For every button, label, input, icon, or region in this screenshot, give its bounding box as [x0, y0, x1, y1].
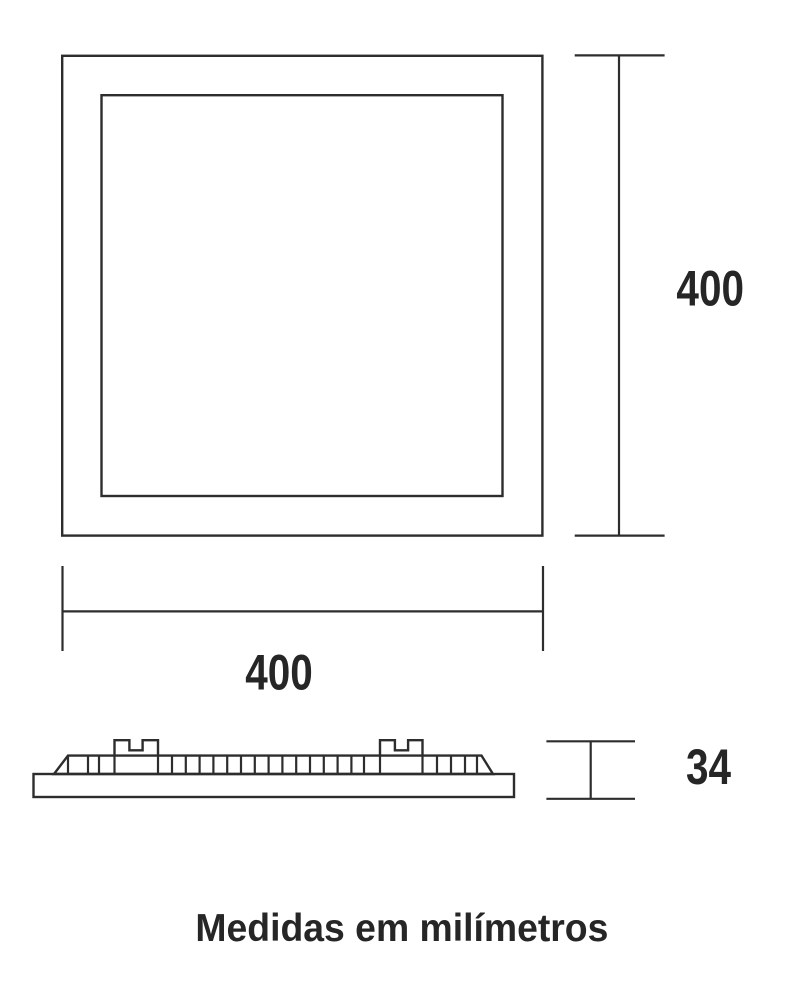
svg-text:400: 400	[245, 644, 313, 700]
svg-text:400: 400	[676, 260, 744, 316]
svg-text:34: 34	[686, 739, 732, 795]
svg-text:Medidas em milímetros: Medidas em milímetros	[195, 906, 608, 950]
